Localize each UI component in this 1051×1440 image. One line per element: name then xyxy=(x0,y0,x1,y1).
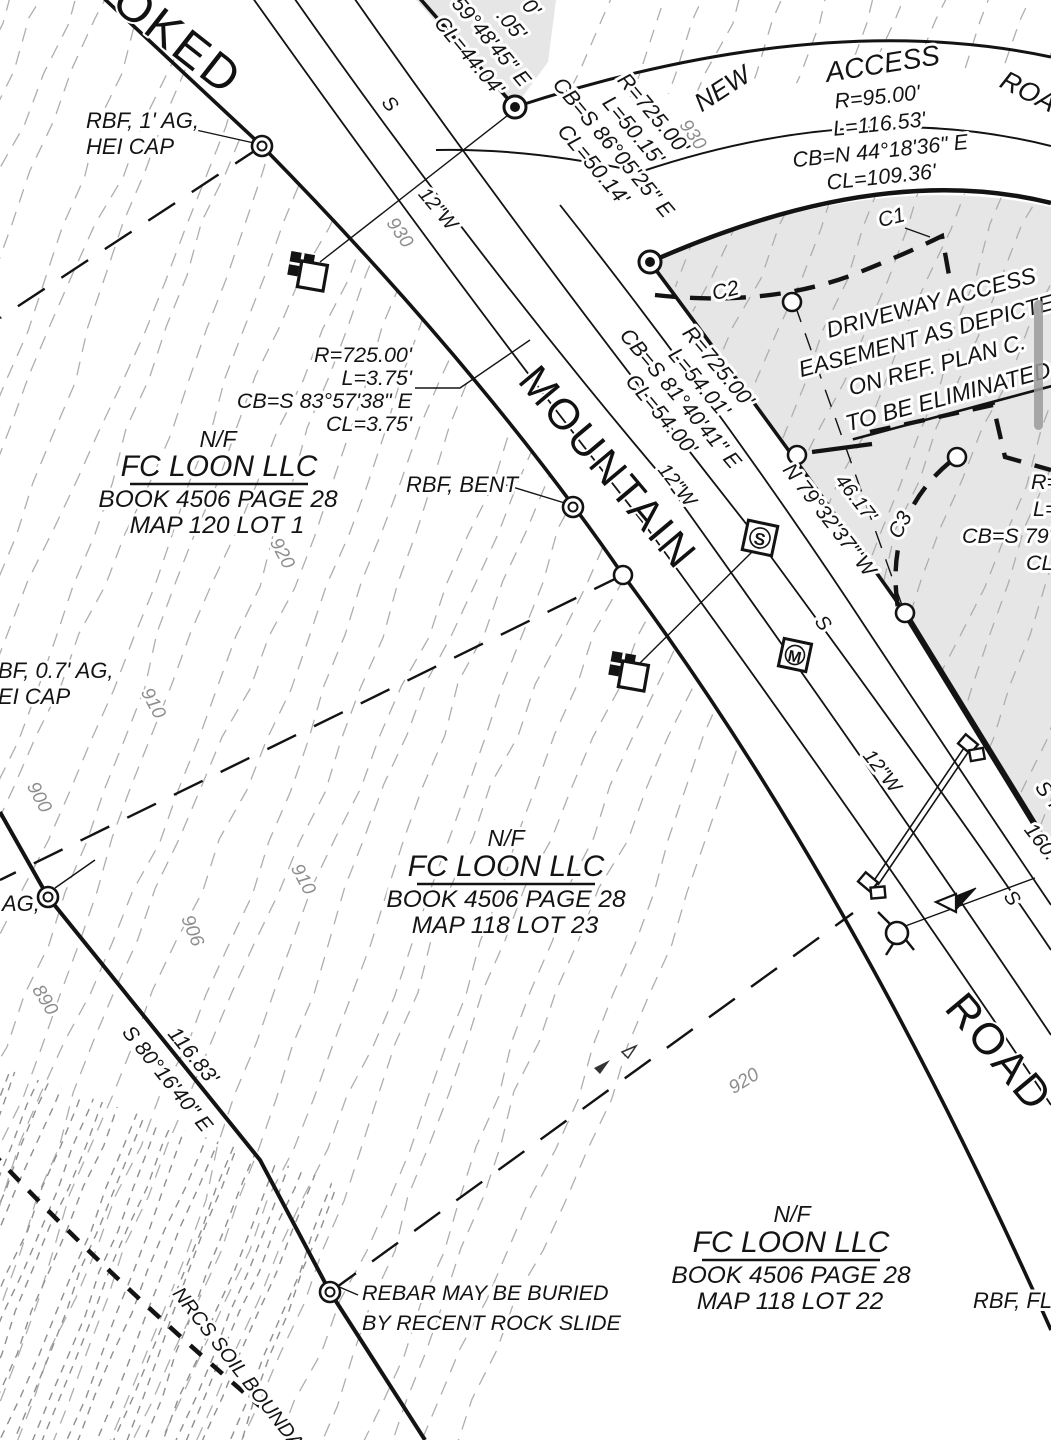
contour-line xyxy=(58,0,753,1440)
contour-line xyxy=(28,1020,248,1440)
note-rbf-bent: RBF, BENT xyxy=(406,472,520,497)
curve-right-cl: CL= xyxy=(1026,551,1051,575)
water-line-label: 12"W xyxy=(858,746,906,799)
owner-book-page: BOOK 4506 PAGE 28 xyxy=(386,886,626,913)
contour-line xyxy=(0,0,641,1440)
rebar-monument-icon xyxy=(38,136,583,1302)
curve-right-cb: CB=S 79°4 xyxy=(962,524,1051,548)
contour-label-890: 890 xyxy=(27,981,62,1019)
owner-name: FC LOON LLC xyxy=(121,450,318,483)
contour-line xyxy=(21,0,720,1440)
contour-line xyxy=(195,1020,407,1440)
contour-line xyxy=(0,1020,107,1440)
owner-book-page: BOOK 4506 PAGE 28 xyxy=(671,1262,911,1289)
hydrant-icon xyxy=(886,922,908,944)
contour-line xyxy=(0,0,280,1440)
owner-nf: N/F xyxy=(773,1201,812,1227)
culvert-flare-end-icon xyxy=(871,886,886,898)
note-rebar-line1: REBAR MAY BE BURIED xyxy=(362,1281,609,1305)
catch-basin-icon xyxy=(618,661,648,691)
gate-valve-icon xyxy=(936,894,956,912)
road-name-road: ROAD xyxy=(936,984,1051,1122)
lot-line-dashed-1 xyxy=(0,146,262,318)
note-rbf1-line2: HEI CAP xyxy=(86,134,174,159)
owner-block-lot22: N/F FC LOON LLC BOOK 4506 PAGE 28 MAP 11… xyxy=(671,1201,911,1315)
contour-line xyxy=(0,0,121,1440)
owner-block-lot1: N/F FC LOON LLC BOOK 4506 PAGE 28 MAP 12… xyxy=(98,426,338,539)
contour-label-906: 906 xyxy=(176,912,208,950)
contour-line xyxy=(0,0,462,1440)
access-road-name-access: ACCESS xyxy=(821,39,942,88)
tie-line-monument-sw xyxy=(55,860,95,888)
contour-label-900: 900 xyxy=(22,778,56,816)
contour-line xyxy=(0,1020,170,1440)
note-ag-fragment: AG, xyxy=(0,891,40,916)
contour-line xyxy=(0,1020,39,1440)
contour-line xyxy=(0,0,567,1440)
contour-line xyxy=(0,0,83,1440)
contour-label-910: 910 xyxy=(286,860,320,898)
flow-arrow-icon xyxy=(594,1060,610,1074)
curve-right-l: L= xyxy=(1033,497,1051,521)
sewer-line-label: S xyxy=(377,92,403,117)
note-rbf1-line1: RBF, 1' AG, xyxy=(86,108,199,133)
contour-label-910: 910 xyxy=(136,684,170,722)
plat-drawing: S M OKED MOUNTAIN ROAD xyxy=(0,0,1051,1440)
contour-line xyxy=(0,1020,88,1440)
note-rbf07-line2: EI CAP xyxy=(0,684,70,709)
contour-line xyxy=(0,1020,27,1440)
contour-line xyxy=(0,0,391,1440)
curve-c-r: R=725.00' xyxy=(314,343,413,367)
contour-line xyxy=(0,0,688,1440)
owner-map-lot: MAP 118 LOT 22 xyxy=(697,1288,884,1315)
sewer-manhole-symbol: S xyxy=(742,520,778,556)
access-road-name-new: NEW xyxy=(688,58,757,118)
owner-map-lot: MAP 120 LOT 1 xyxy=(130,512,305,539)
contour-label-920: 920 xyxy=(725,1064,763,1099)
catch-basin-1 xyxy=(286,251,329,291)
leader-curve-c xyxy=(415,340,530,388)
gate-valve-icon xyxy=(956,888,976,910)
contour-label-920: 920 xyxy=(265,534,299,572)
road-name-fragment-crooked: OKED xyxy=(103,0,252,106)
owner-name: FC LOON LLC xyxy=(693,1226,890,1259)
owner-nf: N/F xyxy=(487,825,526,851)
access-road-north-edge xyxy=(515,41,1051,107)
owner-name: FC LOON LLC xyxy=(408,850,605,883)
leader-catchbasin-2 xyxy=(640,548,756,663)
curve-right-r: R= xyxy=(1031,470,1051,494)
contour-line xyxy=(175,0,868,1440)
owner-nf: N/F xyxy=(199,426,238,452)
contour-line xyxy=(128,0,825,1440)
curve-c-cb: CB=S 83°57'38" E xyxy=(237,389,413,413)
access-road-name-road: ROAD xyxy=(996,65,1051,127)
contour-line xyxy=(0,1020,153,1440)
culvert-flare-end-icon xyxy=(969,748,985,761)
note-rbf-flush: RBF, FLUS xyxy=(973,1288,1051,1313)
catch-basin-2 xyxy=(607,651,650,691)
text-labels: OKED MOUNTAIN ROAD NEW ACCESS ROAD R=95.… xyxy=(0,0,1051,1440)
survey-plat-page: S M OKED MOUNTAIN ROAD xyxy=(0,0,1051,1440)
contour-line xyxy=(0,0,427,1440)
contour-line xyxy=(0,0,609,1440)
owner-book-page: BOOK 4506 PAGE 28 xyxy=(98,486,338,513)
note-rbf07-line1: BF, 0.7' AG, xyxy=(0,658,113,683)
water-meter-symbol: M xyxy=(778,638,811,671)
scrollbar-thumb[interactable] xyxy=(1034,300,1043,430)
owner-map-lot: MAP 118 LOT 23 xyxy=(412,912,599,939)
contour-line xyxy=(0,0,160,1440)
nrcs-soil-boundary-label: NRCS SOIL BOUNDA xyxy=(168,1283,308,1440)
owner-block-lot23: N/F FC LOON LLC BOOK 4506 PAGE 28 MAP 11… xyxy=(386,825,626,939)
easement-shading xyxy=(402,0,1051,845)
note-rebar-line2: BY RECENT ROCK SLIDE xyxy=(362,1311,622,1335)
curve-c-l: L=3.75' xyxy=(342,366,413,390)
catch-basin-icon xyxy=(297,261,327,291)
curve-c-cl: CL=3.75' xyxy=(326,412,413,436)
water-line-label: 12"W xyxy=(414,184,463,237)
